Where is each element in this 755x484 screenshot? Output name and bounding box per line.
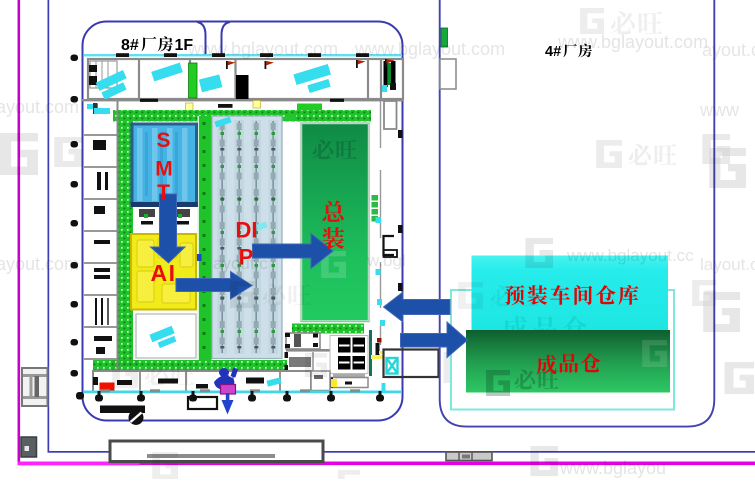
svg-text:AI: AI — [151, 260, 177, 286]
svg-text:www.bglayout.cc: www.bglayout.cc — [566, 246, 694, 265]
svg-text:8#: 8# — [121, 37, 139, 54]
svg-text:ayout.c: ayout.c — [702, 40, 755, 60]
svg-text:www.bglayou: www.bglayou — [559, 458, 666, 478]
svg-text:www: www — [699, 100, 740, 120]
svg-text:M: M — [155, 158, 173, 181]
svg-text:www.bglayout.com: www.bglayout.com — [557, 32, 708, 52]
svg-text:S: S — [156, 129, 170, 152]
svg-text:layout.c: layout.c — [700, 255, 755, 274]
svg-text:www.bglayout.com: www.bglayout.com — [354, 39, 505, 59]
svg-text:T: T — [157, 181, 170, 204]
svg-text:DI: DI — [236, 218, 258, 243]
svg-text:layout.com: layout.com — [0, 254, 79, 274]
svg-text:ayout.com: ayout.com — [0, 97, 79, 117]
svg-text:www.bglayout.com: www.bglayout.com — [187, 39, 338, 59]
svg-text:ayout.c: ayout.c — [213, 254, 268, 273]
svg-text:w.bgl: w.bgl — [366, 251, 406, 270]
